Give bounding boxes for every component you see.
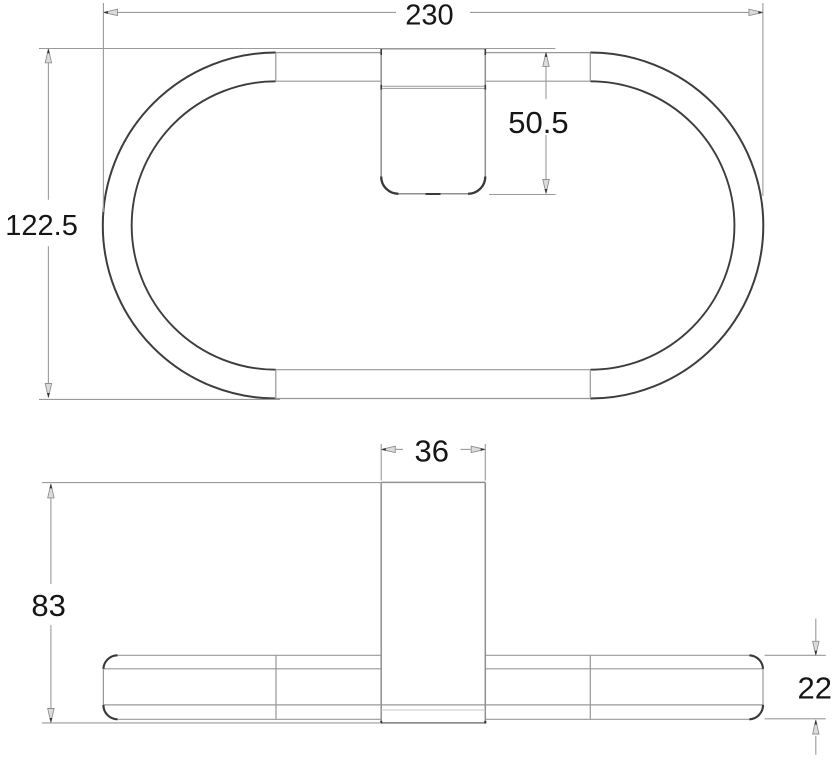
svg-text:22: 22 — [797, 670, 831, 705]
svg-text:50.5: 50.5 — [508, 105, 568, 140]
svg-text:83: 83 — [31, 588, 65, 623]
svg-text:230: 230 — [405, 0, 453, 32]
svg-text:36: 36 — [415, 434, 449, 469]
svg-text:122.5: 122.5 — [5, 210, 78, 242]
